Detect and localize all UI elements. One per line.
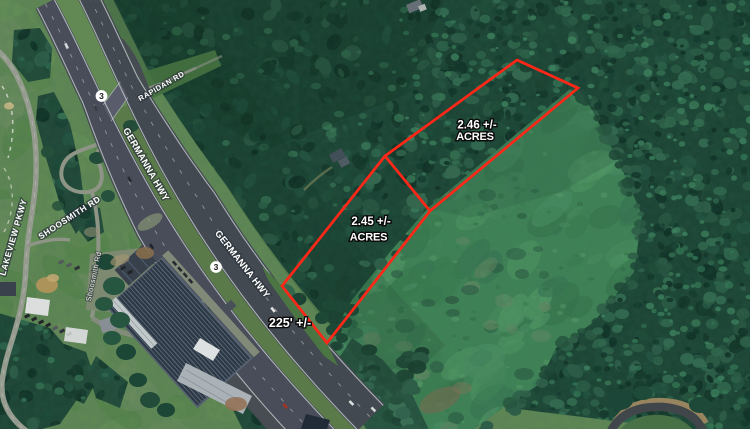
svg-text:ACRES: ACRES (456, 131, 494, 143)
svg-text:2.45 +/-: 2.45 +/- (351, 216, 390, 228)
svg-text:225' +/-: 225' +/- (269, 316, 311, 330)
svg-text:ACRES: ACRES (350, 232, 388, 244)
svg-text:3: 3 (99, 91, 104, 101)
svg-text:2.46 +/-: 2.46 +/- (457, 120, 496, 132)
svg-text:3: 3 (214, 262, 219, 272)
